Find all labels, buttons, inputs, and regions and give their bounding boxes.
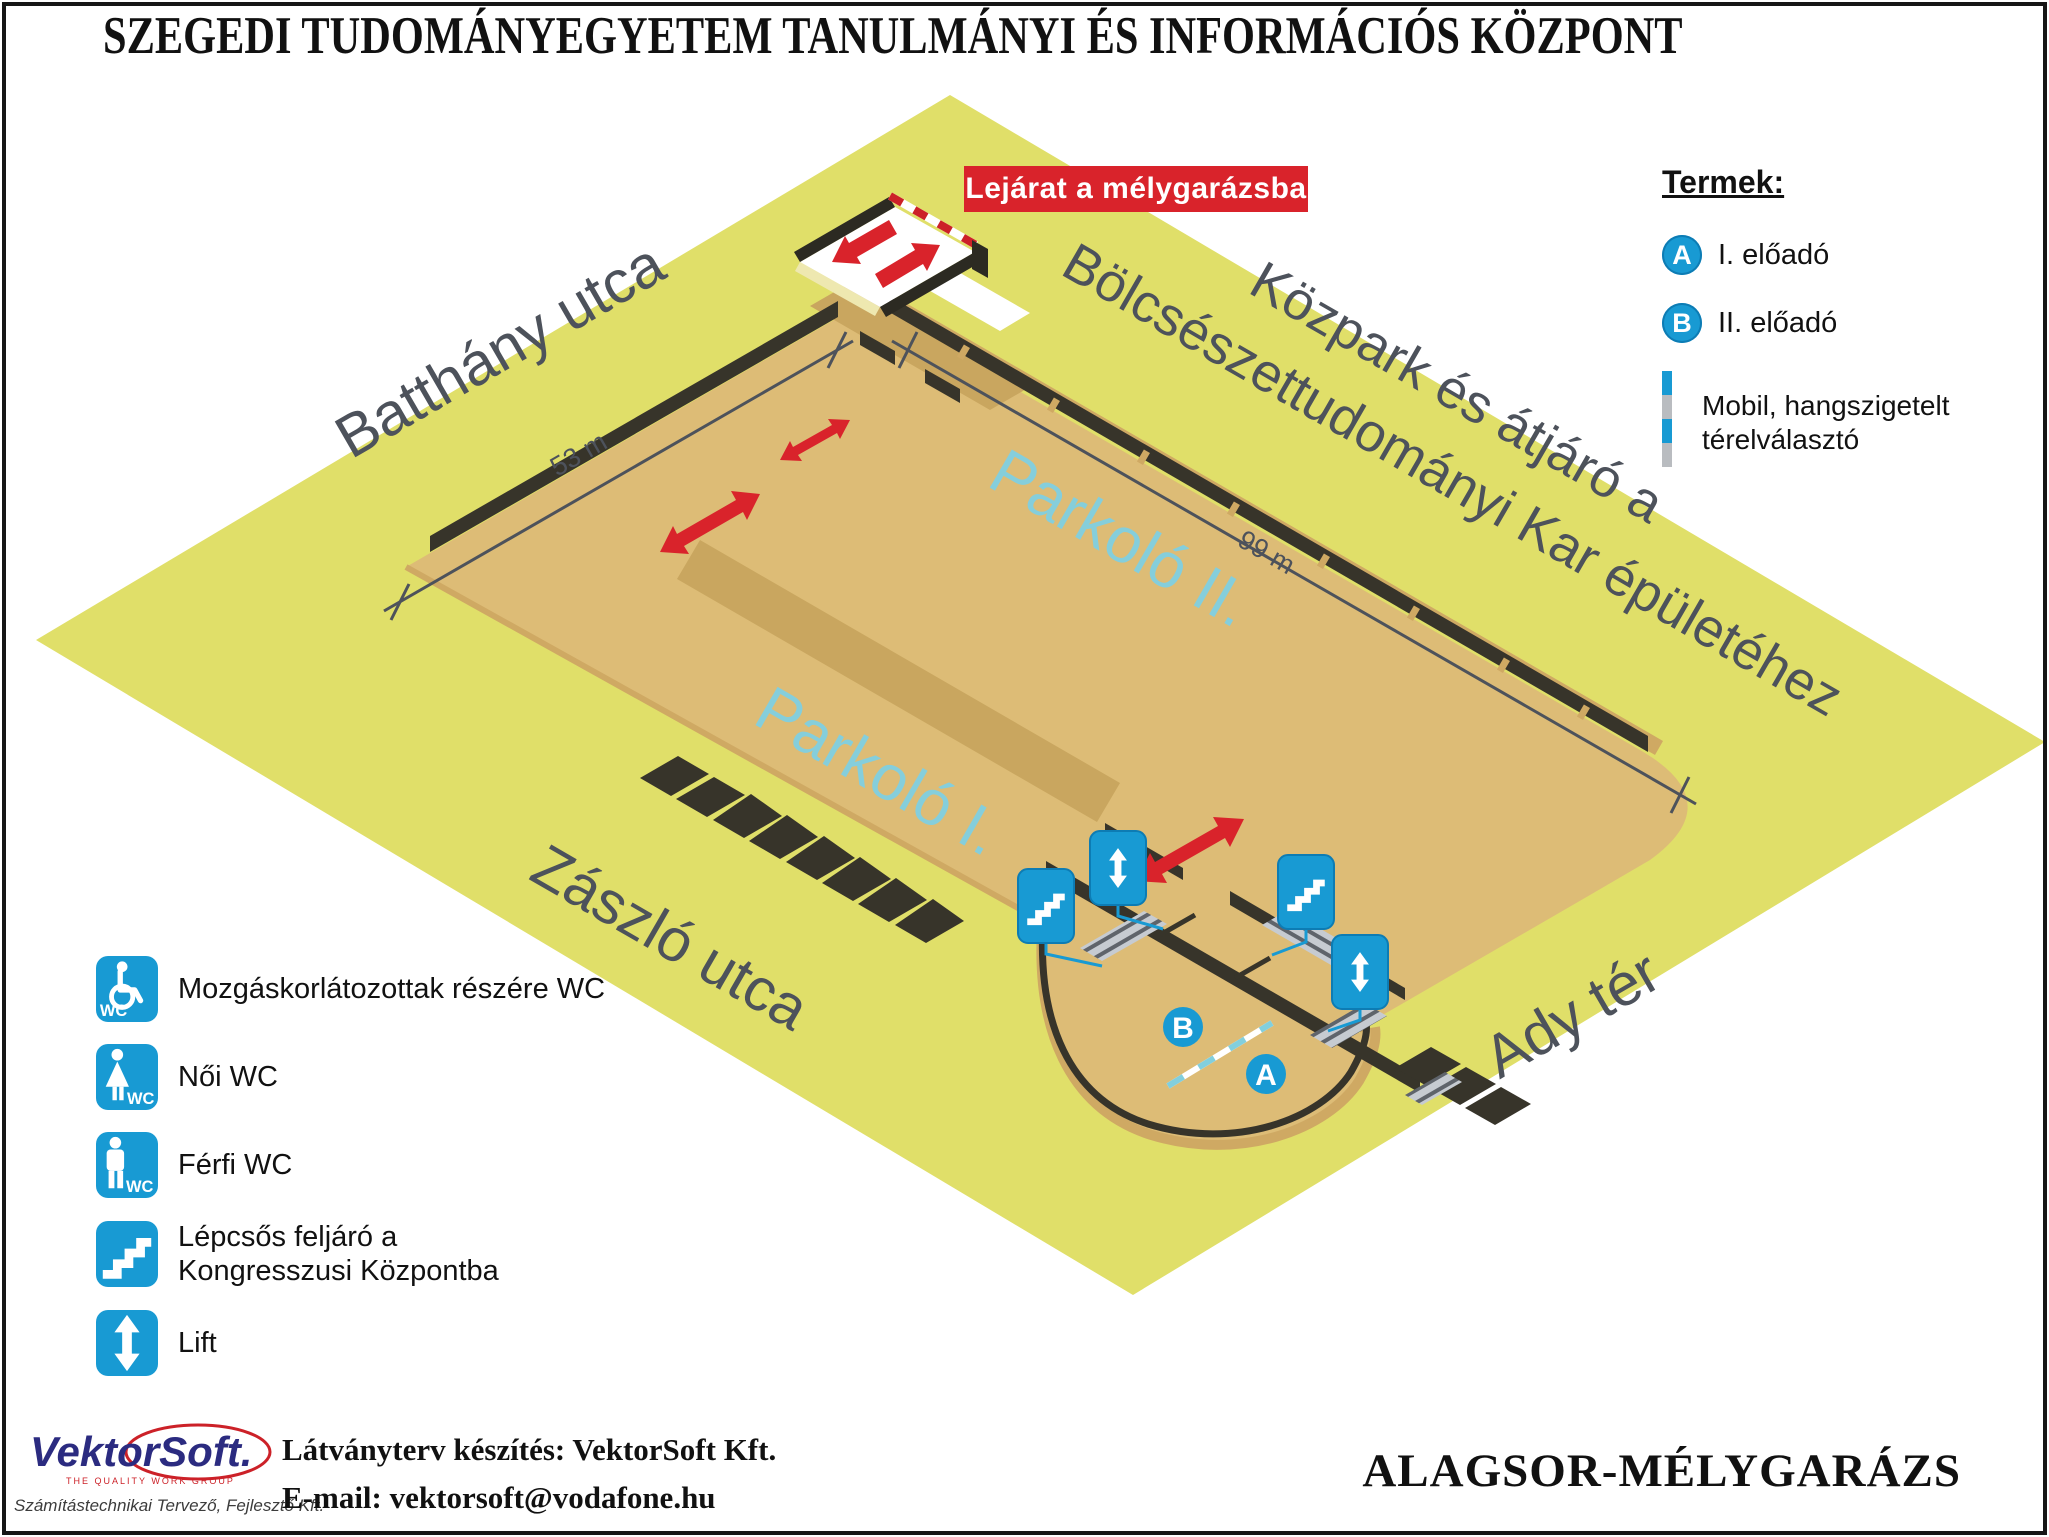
hall-b-badge: B (1662, 303, 1702, 343)
men-wc-icon: WC (96, 1132, 158, 1198)
rooms-legend: Termek: A I. előadó B II. előadó Mobil, … (1662, 164, 1992, 467)
legend-row-hall-a: A I. előadó (1662, 235, 1992, 275)
lift-label: Lift (178, 1326, 217, 1360)
svg-text:WC: WC (100, 1002, 128, 1020)
lift-badge-east (1332, 935, 1388, 1009)
legend-row-stairs: Lépcsős feljáró a Kongresszusi Központba (96, 1220, 605, 1288)
svg-text:WC: WC (127, 1090, 155, 1108)
partition-sample-icon (1662, 371, 1672, 467)
logo-subtitle: Számítástechnikai Tervező, Fejlesztő Kft… (14, 1496, 324, 1516)
stairs-icon (96, 1221, 158, 1287)
credit-designer: Látványterv készítés: VektorSoft Kft. (282, 1432, 776, 1468)
stairs-label-line1: Lépcsős feljáró a (178, 1220, 499, 1254)
stairs-badge-east (1278, 855, 1334, 929)
vektorsoft-logo: VektorSoft. THE QUALITY WORK GROUP (26, 1422, 286, 1496)
hall-b-label: II. előadó (1718, 307, 1837, 340)
room-marker-a-letter: A (1255, 1059, 1277, 1092)
women-wc-icon: WC (96, 1044, 158, 1110)
wheelchair-wc-label: Mozgáskorlátozottak részére WC (178, 972, 605, 1006)
stairs-label: Lépcsős feljáró a Kongresszusi Központba (178, 1220, 499, 1288)
lift-badge-west (1090, 831, 1146, 905)
stairs-badge-west (1018, 869, 1074, 943)
partition-label: Mobil, hangszigetelt térelválasztó (1702, 371, 1949, 457)
legend-row-wheelchair-wc: WC Mozgáskorlátozottak részére WC (96, 956, 605, 1022)
men-wc-label: Férfi WC (178, 1148, 292, 1182)
logo-tagline: THE QUALITY WORK GROUP (66, 1476, 235, 1486)
logo-text: VektorSoft. (30, 1428, 252, 1475)
room-marker-b: B (1163, 1007, 1203, 1047)
hall-a-badge: A (1662, 235, 1702, 275)
partition-label-line2: térelválasztó (1702, 423, 1949, 457)
hall-a-label: I. előadó (1718, 239, 1829, 272)
room-marker-b-letter: B (1172, 1012, 1194, 1045)
legend-row-lift: Lift (96, 1310, 605, 1376)
legend-row-hall-b: B II. előadó (1662, 303, 1992, 343)
stairs-label-line2: Kongresszusi Központba (178, 1254, 499, 1288)
legend-row-divider: Mobil, hangszigetelt térelválasztó (1662, 371, 1992, 467)
women-wc-label: Női WC (178, 1060, 278, 1094)
credit-email: E-mail: vektorsoft@vodafone.hu (282, 1480, 776, 1516)
legend-row-women-wc: WC Női WC (96, 1044, 605, 1110)
entrance-sign: Lejárat a mélygarázsba (964, 166, 1308, 212)
plan-title: ALAGSOR-MÉLYGARÁZS (1362, 1444, 1961, 1498)
room-marker-a: A (1246, 1054, 1286, 1094)
partition-label-line1: Mobil, hangszigetelt (1702, 389, 1949, 423)
svg-text:WC: WC (126, 1178, 154, 1196)
page-title: SZEGEDI TUDOMÁNYEGYETEM TANULMÁNYI ÉS IN… (103, 6, 1683, 66)
lift-icon (96, 1310, 158, 1376)
legend-row-men-wc: WC Férfi WC (96, 1132, 605, 1198)
rooms-legend-heading: Termek: (1662, 164, 1992, 201)
wheelchair-wc-icon: WC (96, 956, 158, 1022)
footer-credits: Látványterv készítés: VektorSoft Kft. E-… (282, 1432, 776, 1528)
facilities-legend: WC Mozgáskorlátozottak részére WC WC Női… (96, 956, 605, 1398)
